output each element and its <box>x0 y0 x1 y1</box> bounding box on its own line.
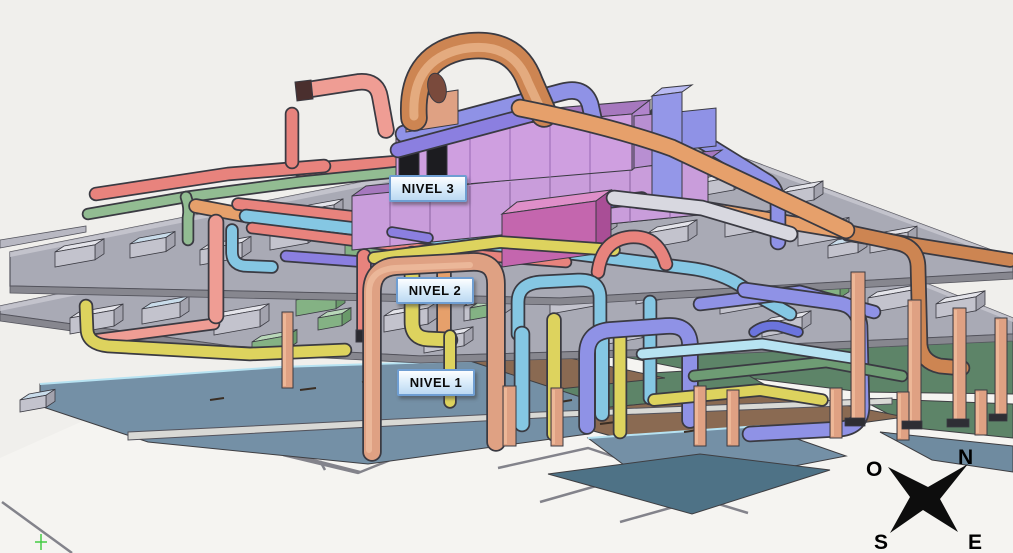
compass-west-label: O <box>866 458 882 481</box>
level-label-nivel-3[interactable]: NIVEL 3 <box>389 175 467 202</box>
level-label-text: NIVEL 1 <box>410 375 462 390</box>
model-viewport[interactable]: O N S E NIVEL 3 NIVEL 2 NIVEL 1 <box>0 0 1013 553</box>
compass-south-label: S <box>874 531 888 553</box>
rooftop-units <box>295 45 846 267</box>
duct-open-end <box>295 80 313 101</box>
compass-north-label: N <box>958 446 973 469</box>
model-scene: O N S E <box>0 0 1013 553</box>
level-label-nivel-1[interactable]: NIVEL 1 <box>397 369 475 396</box>
level-label-nivel-2[interactable]: NIVEL 2 <box>396 277 474 304</box>
level-label-text: NIVEL 3 <box>402 181 454 196</box>
level-label-text: NIVEL 2 <box>409 283 461 298</box>
compass-east-label: E <box>968 531 982 553</box>
